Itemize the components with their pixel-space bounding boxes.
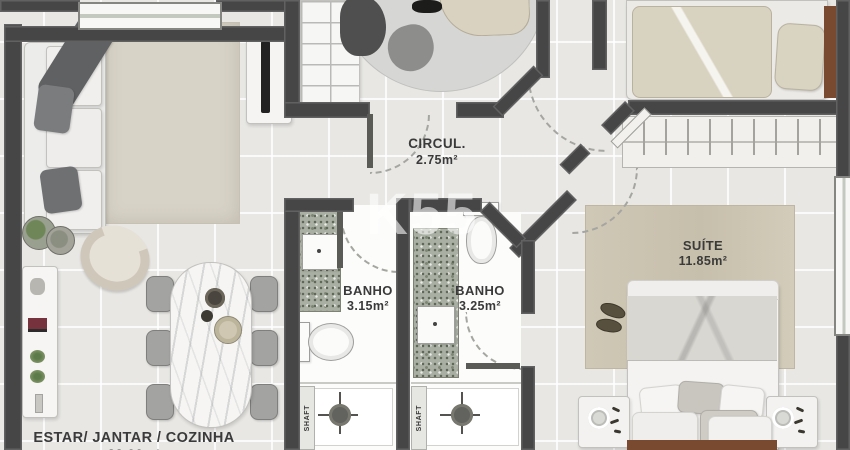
- door-leaf: [367, 114, 373, 168]
- bean-bag: [340, 0, 386, 56]
- wall-segment: [284, 198, 354, 212]
- bath2-area: 3.25m²: [432, 299, 528, 315]
- label-bath2: BANHO 3.25m²: [432, 283, 528, 315]
- wall-segment: [521, 366, 535, 450]
- bath1-shower-tray: [313, 388, 393, 446]
- table-plate: [205, 288, 225, 308]
- wall-segment: [628, 100, 850, 115]
- bath1-shower-head: [329, 404, 351, 426]
- wall-segment: [836, 332, 850, 450]
- table-lamp: [772, 407, 794, 429]
- label-living: ESTAR/ JANTAR / COZINHA 22.00m²: [28, 429, 240, 450]
- table-bowl: [214, 316, 242, 344]
- label-circulation: CIRCUL. 2.75m²: [385, 136, 489, 169]
- suite-headboard: [627, 440, 777, 450]
- wall-segment: [536, 0, 550, 78]
- bath1-name: BANHO: [343, 283, 393, 298]
- sideboard-plant: [30, 350, 45, 363]
- circulation-area: 2.75m²: [385, 153, 489, 169]
- sideboard-candle: [35, 394, 43, 413]
- table-plate: [201, 310, 213, 322]
- bath2-shower-divider: [411, 382, 521, 384]
- bath1-shaft-label: SHAFT: [304, 405, 311, 431]
- circulation-name: CIRCUL.: [408, 136, 466, 151]
- suite-bed-blanket: [627, 296, 777, 361]
- wall-segment: [0, 0, 80, 12]
- bath2-shaft-label: SHAFT: [416, 405, 423, 431]
- sideboard-books: [28, 318, 47, 332]
- suite-area: 11.85m²: [653, 254, 753, 270]
- bath2-shower-head: [451, 404, 473, 426]
- bed2-pillow: [774, 22, 826, 91]
- door-swing-arc: [527, 72, 607, 152]
- dining-chair: [250, 276, 278, 312]
- closet-hanger-rack: [622, 116, 840, 168]
- door-leaf: [337, 212, 343, 268]
- wall-segment: [284, 0, 300, 118]
- table-lamp: [588, 407, 610, 429]
- wall-segment: [592, 0, 607, 70]
- wall-segment: [284, 198, 300, 450]
- bath2-name: BANHO: [455, 283, 505, 298]
- dining-chair: [250, 330, 278, 366]
- sideboard-plant: [30, 370, 45, 383]
- desk-object: [412, 0, 442, 13]
- bath1-shower-divider: [299, 382, 396, 384]
- sofa-pillow: [33, 84, 75, 135]
- bath2-faucet: [433, 322, 437, 326]
- wall-segment: [4, 24, 22, 450]
- bath1-faucet: [317, 249, 321, 253]
- bed2-headboard: [824, 6, 836, 98]
- sideboard-vase: [30, 278, 45, 295]
- bath1-shaft-duct: SHAFT: [299, 386, 315, 450]
- label-suite: SUÍTE 11.85m²: [653, 238, 753, 270]
- dining-table: [170, 262, 252, 428]
- bath1-toilet-bowl: [308, 323, 354, 361]
- dining-chair: [250, 384, 278, 420]
- watermark: K55: [366, 186, 478, 244]
- door-leaf: [466, 363, 520, 369]
- tv: [261, 41, 270, 113]
- wall-segment: [284, 102, 370, 118]
- window: [834, 176, 850, 336]
- living-rug: [102, 22, 240, 224]
- label-bath1: BANHO 3.15m²: [320, 283, 416, 315]
- window: [78, 2, 222, 30]
- bath2-shaft-duct: SHAFT: [411, 386, 427, 450]
- plant-pot: [46, 226, 75, 255]
- sofa-pillow: [39, 166, 83, 215]
- suite-name: SUÍTE: [683, 238, 723, 253]
- floor-plan: SHAFT SHAFT CIRCUL. 2.75m²: [0, 0, 850, 450]
- bed2-blanket: [632, 6, 772, 98]
- living-name: ESTAR/ JANTAR / COZINHA: [33, 430, 234, 446]
- wall-segment: [836, 0, 850, 178]
- bath1-area: 3.15m²: [320, 299, 416, 315]
